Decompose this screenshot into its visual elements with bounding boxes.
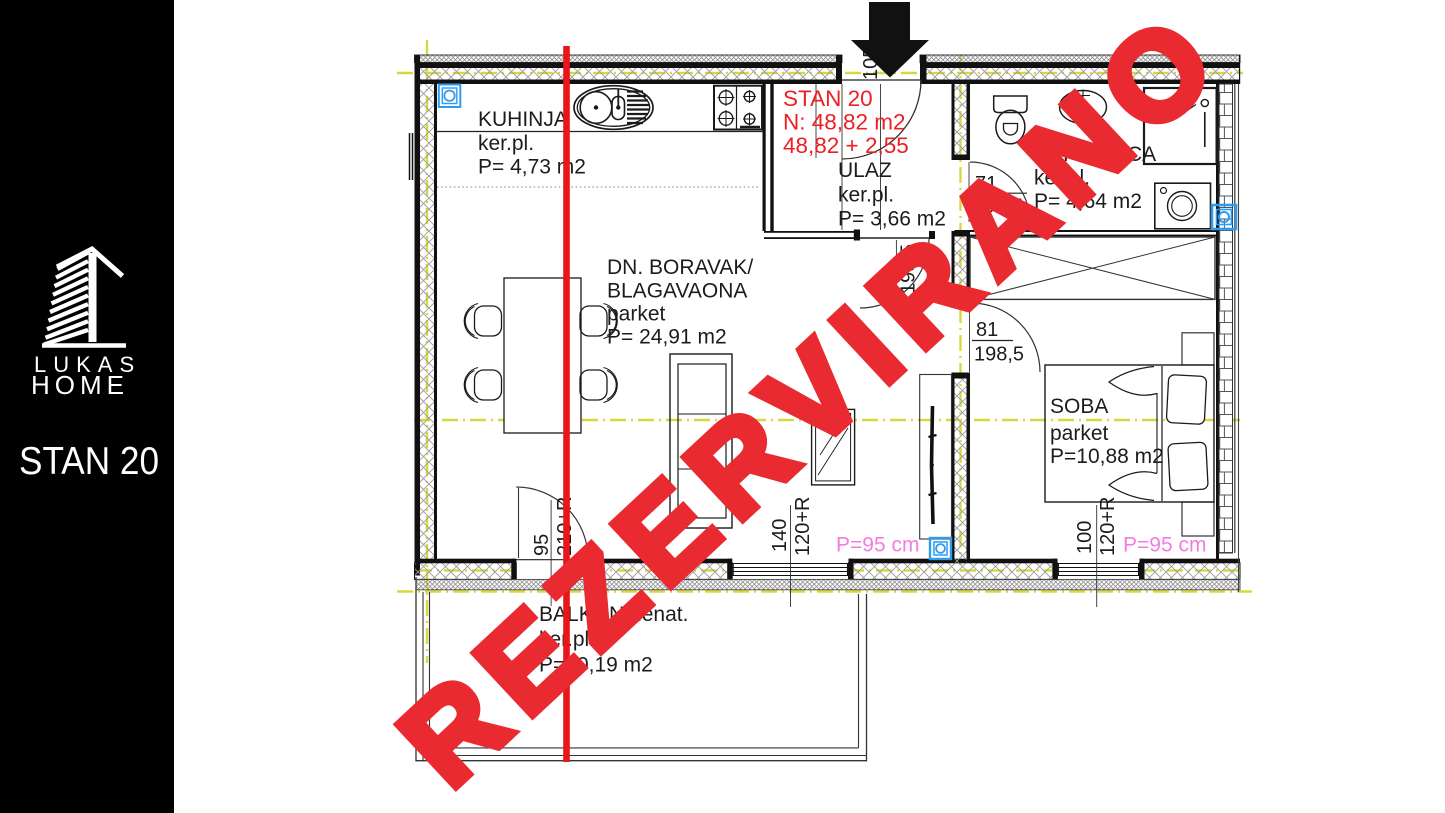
svg-text:P=10,88 m2: P=10,88 m2: [1050, 445, 1164, 468]
svg-text:P=95 cm: P=95 cm: [836, 534, 919, 557]
svg-text:parket: parket: [607, 303, 666, 326]
svg-text:DN. BORAVAK/: DN. BORAVAK/: [607, 256, 753, 279]
svg-text:HOME: HOME: [31, 370, 129, 400]
svg-text:P=95 cm: P=95 cm: [1123, 534, 1206, 557]
svg-text:BLAGAVAONA: BLAGAVAONA: [607, 280, 747, 303]
svg-text:KUHINJA: KUHINJA: [478, 108, 568, 131]
svg-text:120+R: 120+R: [1097, 497, 1119, 557]
svg-text:ker.pl.: ker.pl.: [478, 132, 534, 155]
svg-text:ker.pl.: ker.pl.: [838, 184, 894, 207]
svg-text:parket: parket: [1050, 422, 1109, 445]
svg-text:48,82 + 2,55: 48,82 + 2,55: [783, 133, 909, 158]
svg-text:N: 48,82 m2: N: 48,82 m2: [783, 110, 906, 135]
svg-text:100: 100: [1074, 521, 1096, 554]
svg-text:198,5: 198,5: [974, 344, 1024, 366]
svg-text:P= 24,91 m2: P= 24,91 m2: [607, 326, 727, 349]
svg-text:STAN 20: STAN 20: [783, 86, 873, 111]
svg-text:STAN 20: STAN 20: [19, 440, 159, 483]
svg-text:ULAZ: ULAZ: [838, 159, 892, 182]
svg-text:SOBA: SOBA: [1050, 395, 1108, 418]
